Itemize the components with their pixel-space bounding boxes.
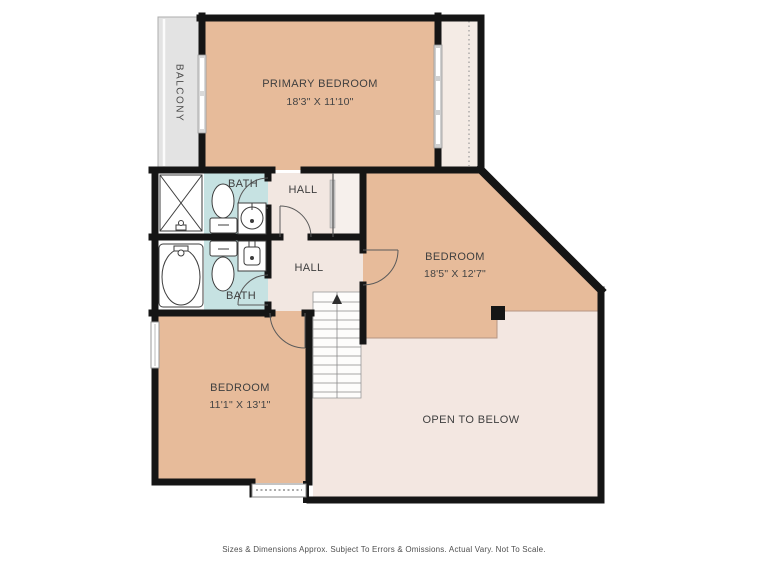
sink-top-icon bbox=[238, 203, 266, 234]
bedroom-left-area bbox=[155, 311, 307, 483]
floorplan-drawing bbox=[0, 0, 768, 576]
bath-bottom-label: BATH bbox=[226, 290, 256, 302]
bedroom-left-label: BEDROOM bbox=[210, 382, 270, 394]
right-strip-area bbox=[438, 16, 481, 170]
bedroom-left-dims: 11'1" X 13'1" bbox=[209, 399, 270, 411]
primary-bedroom-area bbox=[202, 16, 438, 170]
primary-bedroom-dims: 18'3" X 11'10" bbox=[286, 96, 353, 108]
structural-post bbox=[491, 306, 505, 320]
bedroom-right-dims: 18'5" X 12'7" bbox=[424, 268, 486, 280]
primary-bedroom-label: PRIMARY BEDROOM bbox=[262, 78, 378, 90]
balcony-label: BALCONY bbox=[174, 64, 185, 122]
bath-top-label: BATH bbox=[228, 178, 258, 190]
bedroom-left-bottom-window bbox=[252, 484, 306, 497]
sink-bottom-icon bbox=[238, 241, 266, 271]
floorplan-page: PRIMARY BEDROOM 18'3" X 11'10" BALCONY B… bbox=[0, 0, 768, 576]
shower-icon bbox=[160, 175, 202, 231]
closet-area bbox=[333, 173, 363, 237]
bedroom-right-label: BEDROOM bbox=[425, 251, 485, 263]
primary-bedroom-window bbox=[434, 45, 442, 148]
open-to-below-label: OPEN TO BELOW bbox=[422, 414, 519, 426]
disclaimer-text: Sizes & Dimensions Approx. Subject To Er… bbox=[0, 545, 768, 554]
balcony-slider-window bbox=[198, 55, 206, 133]
hall-top-label: HALL bbox=[288, 184, 317, 196]
hall-bottom-label: HALL bbox=[294, 262, 323, 274]
bedroom-left-side-window bbox=[151, 322, 159, 368]
stairs bbox=[313, 292, 361, 398]
bathtub-icon bbox=[159, 244, 203, 307]
hall-top-area bbox=[268, 173, 333, 237]
